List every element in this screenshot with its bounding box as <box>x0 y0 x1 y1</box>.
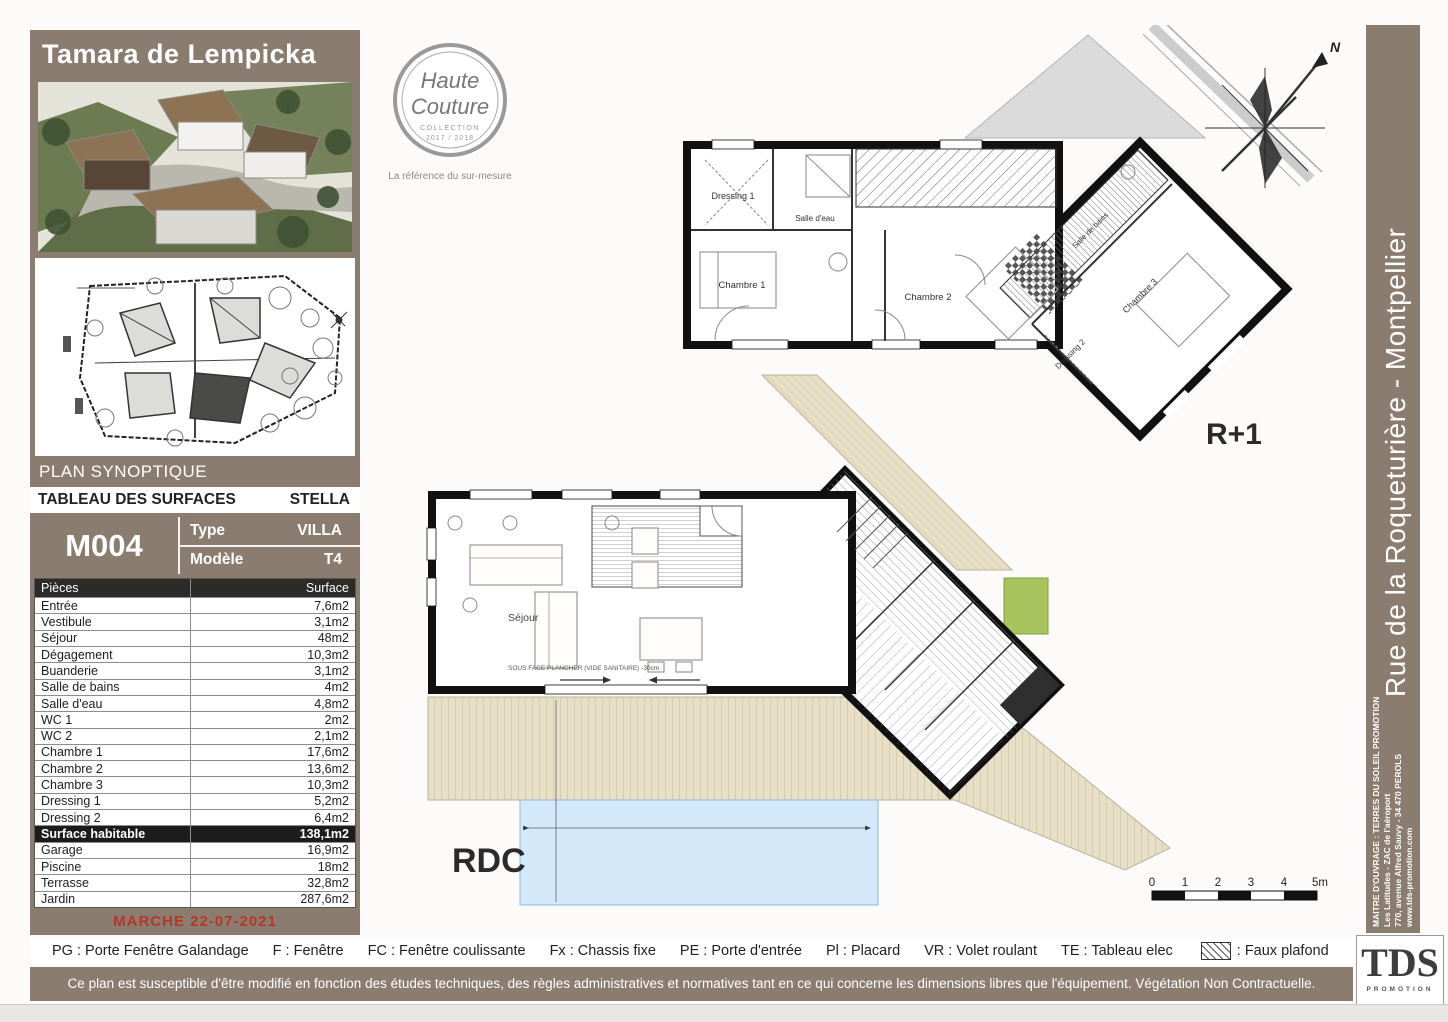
scale-tick: 1 <box>1182 877 1188 889</box>
legend-item: FC : Fenêtre coulissante <box>368 943 526 959</box>
r1-room-chambre2: Chambre 2 <box>905 292 952 303</box>
row-value: 6,4m2 <box>191 811 355 825</box>
table-row: Dressing 15,2m2 <box>35 793 355 809</box>
lot-header: M004 Type VILLA Modèle T4 <box>30 517 360 574</box>
row-label: Séjour <box>35 631 191 646</box>
row-value: 10,3m2 <box>191 648 355 662</box>
row-value: 32,8m2 <box>191 876 355 890</box>
table-row: Jardin287,6m2 <box>35 891 355 907</box>
site-plan-drawing <box>35 258 355 456</box>
row-value: 3,1m2 <box>191 664 355 678</box>
lot-type-row: Type VILLA <box>180 517 360 547</box>
r1-room-dressing1: Dressing 1 <box>711 191 754 201</box>
r1-room-chambre1: Chambre 1 <box>719 280 766 291</box>
site-plan-image <box>35 258 355 456</box>
rdc-floor-label: RDC <box>452 842 526 880</box>
row-value: 13,6m2 <box>191 762 355 776</box>
col-surface: Surface <box>191 579 355 597</box>
type-label: Type <box>190 522 225 540</box>
model-label: Modèle <box>190 551 243 569</box>
row-label: Buanderie <box>35 663 191 678</box>
row-label: Garage <box>35 843 191 858</box>
tds-logo: TDS PROMOTION <box>1356 935 1444 1005</box>
logo-word-2: Couture <box>411 94 489 119</box>
row-label: Vestibule <box>35 614 191 629</box>
logo-years: 2017 / 2018 <box>426 135 474 142</box>
website: www.tds-promotion.com <box>1404 652 1415 927</box>
row-value: 5,2m2 <box>191 794 355 808</box>
row-label: Salle de bains <box>35 680 191 695</box>
table-row: Entrée7,6m2 <box>35 597 355 613</box>
haute-couture-logo: Haute Couture COLLECTION 2017 / 2018 La … <box>380 40 520 182</box>
row-value: 17,6m2 <box>191 745 355 759</box>
row-label: WC 2 <box>35 729 191 744</box>
table-row: Séjour48m2 <box>35 630 355 646</box>
table-row: Salle de bains4m2 <box>35 679 355 695</box>
logo-tagline: La référence du sur-mesure <box>380 171 520 182</box>
col-pieces: Pièces <box>35 579 191 597</box>
address-line-2: 770, avenue Alfred Sauvy - 34 470 PEROLS <box>1393 652 1404 927</box>
owner-line: MAITRE D'OUVRAGE : TERRES DU SOLEIL PROM… <box>1371 652 1382 927</box>
haute-couture-seal: Haute Couture COLLECTION 2017 / 2018 <box>390 40 510 160</box>
row-label: Dégagement <box>35 647 191 662</box>
tds-brand-sub: PROMOTION <box>1357 986 1443 993</box>
project-title: Tamara de Lempicka <box>30 30 360 78</box>
r1-room-salle-eau: Salle d'eau <box>795 214 834 223</box>
rdc-floor-note: SOUS FACE PLANCHER (VIDE SANITAIRE) -30c… <box>508 665 659 672</box>
row-value: 3,1m2 <box>191 615 355 629</box>
table-row: Chambre 117,6m2 <box>35 744 355 760</box>
tds-brand: TDS <box>1357 940 1443 986</box>
table-row: WC 22,1m2 <box>35 728 355 744</box>
row-value: 48m2 <box>191 631 355 645</box>
surface-table-header: Pièces Surface <box>35 579 355 597</box>
table-row: Chambre 213,6m2 <box>35 760 355 776</box>
row-value: 2,1m2 <box>191 729 355 743</box>
plan-sheet: Tamara de Lempicka <box>0 0 1448 1005</box>
right-sidebar: Rue de la Roqueturière - Montpellier MAI… <box>1366 25 1420 933</box>
table-row: Dégagement10,3m2 <box>35 646 355 662</box>
table-row: Terrasse32,8m2 <box>35 874 355 890</box>
address-line-1: Les Latitudes - ZAC de l'aéroport <box>1382 652 1393 927</box>
pool <box>520 800 878 905</box>
surface-table: Pièces Surface Entrée7,6m2Vestibule3,1m2… <box>34 578 356 908</box>
legend-item: PE : Porte d'entrée <box>680 943 802 959</box>
lot-number: M004 <box>30 517 180 574</box>
row-value: 16,9m2 <box>191 843 355 857</box>
row-label: Surface habitable <box>35 826 191 841</box>
legend-item: F : Fenêtre <box>273 943 344 959</box>
row-label: WC 1 <box>35 712 191 727</box>
table-row: Dressing 26,4m2 <box>35 809 355 825</box>
legend-item: VR : Volet roulant <box>924 943 1037 959</box>
faux-plafond-label: : Faux plafond <box>1237 943 1329 959</box>
scale-tick: 5m <box>1312 877 1328 889</box>
table-row: WC 12m2 <box>35 711 355 727</box>
plan-synoptique-label: PLAN SYNOPTIQUE <box>39 460 359 484</box>
legend-bar: PG : Porte Fenêtre GalandageF : FenêtreF… <box>30 937 1353 965</box>
scale-tick: 0 <box>1149 877 1155 889</box>
table-row: Salle d'eau4,8m2 <box>35 695 355 711</box>
compass-north-label: N <box>1330 39 1341 55</box>
disclaimer-text: Ce plan est susceptible d'être modifié e… <box>30 967 1353 1001</box>
grass-patch <box>1004 578 1048 634</box>
table-row: Vestibule3,1m2 <box>35 613 355 629</box>
row-value: 18m2 <box>191 860 355 874</box>
faux-plafond-hatch-icon <box>1201 942 1231 960</box>
surface-table-name: STELLA <box>290 487 350 513</box>
scale-tick: 4 <box>1281 877 1288 889</box>
row-label: Chambre 1 <box>35 745 191 760</box>
row-value: 287,6m2 <box>191 892 355 906</box>
logo-word-1: Haute <box>421 68 480 93</box>
row-label: Chambre 2 <box>35 761 191 776</box>
legend-item: PG : Porte Fenêtre Galandage <box>52 943 249 959</box>
street-title: Rue de la Roqueturière - Montpellier <box>1380 37 1412 697</box>
table-row: Chambre 310,3m2 <box>35 776 355 792</box>
row-label: Entrée <box>35 598 191 613</box>
table-row: Buanderie3,1m2 <box>35 662 355 678</box>
legend-item: Fx : Chassis fixe <box>550 943 656 959</box>
logo-collection: COLLECTION <box>420 125 480 132</box>
scale-tick: 3 <box>1248 877 1254 889</box>
row-value: 4m2 <box>191 680 355 694</box>
render-illustration <box>38 82 352 252</box>
row-label: Salle d'eau <box>35 696 191 711</box>
r1-floor-label: R+1 <box>1206 418 1262 451</box>
table-row: Garage16,9m2 <box>35 842 355 858</box>
row-value: 138,1m2 <box>191 827 355 841</box>
row-value: 2m2 <box>191 713 355 727</box>
row-label: Piscine <box>35 859 191 874</box>
row-label: Chambre 3 <box>35 777 191 792</box>
row-value: 4,8m2 <box>191 697 355 711</box>
table-row: Piscine18m2 <box>35 858 355 874</box>
owner-info: MAITRE D'OUVRAGE : TERRES DU SOLEIL PROM… <box>1371 652 1415 927</box>
row-label: Jardin <box>35 892 191 907</box>
project-render-image <box>38 82 352 252</box>
row-label: Terrasse <box>35 875 191 890</box>
type-value: VILLA <box>297 522 342 540</box>
model-value: T4 <box>324 551 342 569</box>
row-label: Dressing 1 <box>35 794 191 809</box>
surface-table-title: TABLEAU DES SURFACES <box>38 487 236 513</box>
table-row: Surface habitable138,1m2 <box>35 825 355 841</box>
plan-rdc: Séjour SOUS FACE PLANCHER (VIDE SANITAIR… <box>427 375 1170 905</box>
marche-date: MARCHE 22-07-2021 <box>30 908 360 935</box>
lot-model-row: Modèle T4 <box>180 547 360 575</box>
rdc-room-sejour: Séjour <box>508 612 539 624</box>
legend-item: TE : Tableau elec <box>1061 943 1173 959</box>
row-value: 7,6m2 <box>191 599 355 613</box>
scale-tick: 2 <box>1215 877 1221 889</box>
legend-item: Pl : Placard <box>826 943 900 959</box>
scale-bar: 0 1 2 3 4 5m <box>1149 877 1328 900</box>
row-value: 10,3m2 <box>191 778 355 792</box>
left-panel: Tamara de Lempicka <box>30 30 360 935</box>
row-label: Dressing 2 <box>35 810 191 825</box>
surface-table-title-row: TABLEAU DES SURFACES STELLA <box>30 487 360 513</box>
